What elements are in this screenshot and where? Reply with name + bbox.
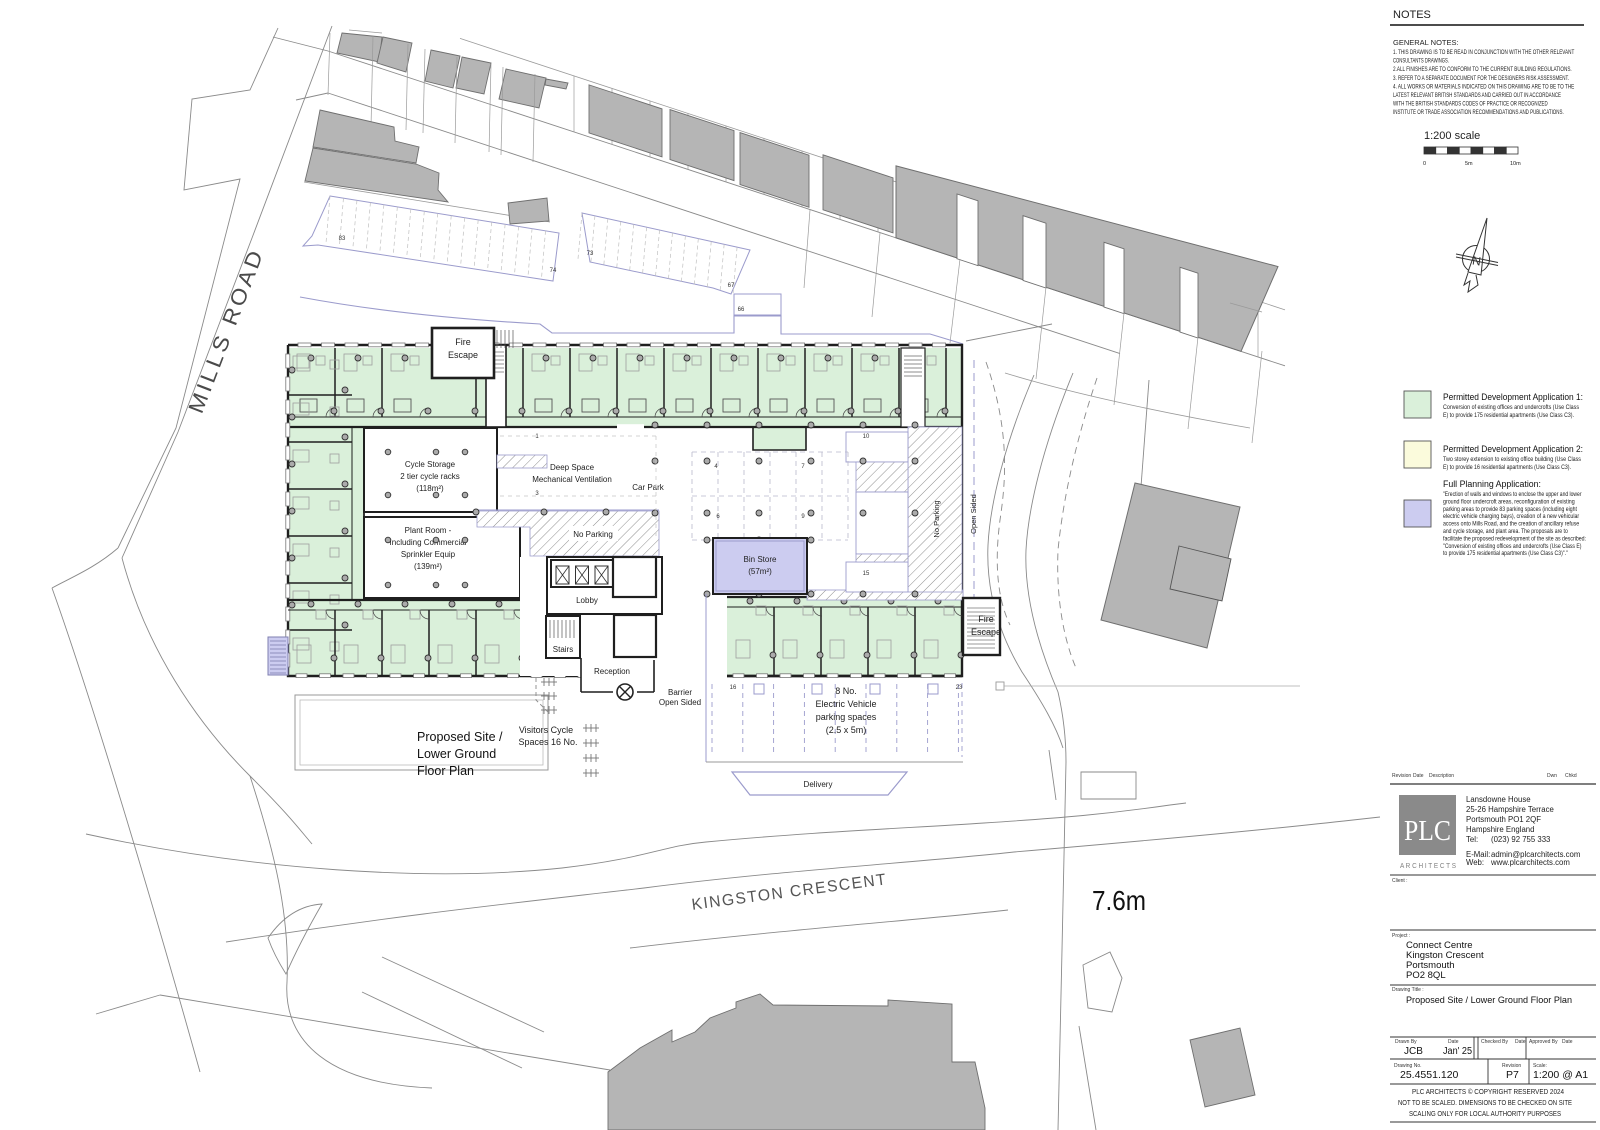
svg-text:Proposed Site /: Proposed Site / <box>417 730 503 744</box>
svg-text:16: 16 <box>730 685 737 691</box>
svg-text:NOTES: NOTES <box>1393 9 1431 21</box>
svg-text:ground floor undercroft areas,: ground floor undercroft areas, reconfigu… <box>1443 498 1575 505</box>
svg-text:Deep Space: Deep Space <box>550 463 595 472</box>
svg-text:66: 66 <box>738 307 745 313</box>
svg-text:GENERAL NOTES:: GENERAL NOTES: <box>1393 38 1459 47</box>
svg-text:www.plcarchitects.com: www.plcarchitects.com <box>1490 858 1570 867</box>
svg-text:Lobby: Lobby <box>576 596 598 605</box>
svg-text:4. ALL WORKS OR MATERIALS INDI: 4. ALL WORKS OR MATERIALS INDICATED ON T… <box>1393 84 1574 90</box>
svg-text:Electric Vehicle: Electric Vehicle <box>815 699 876 709</box>
svg-text:Stairs: Stairs <box>553 645 573 654</box>
svg-text:7.6m: 7.6m <box>1092 885 1146 916</box>
svg-text:74: 74 <box>550 268 557 274</box>
svg-text:Drawn By: Drawn By <box>1395 1039 1417 1045</box>
svg-text:Two storey extension to existi: Two storey extension to existing office … <box>1443 456 1581 463</box>
svg-text:parking spaces: parking spaces <box>816 712 877 722</box>
svg-text:1:200 @ A1: 1:200 @ A1 <box>1533 1069 1588 1081</box>
svg-text:A R C H I T E C T S: A R C H I T E C T S <box>1400 861 1456 870</box>
svg-text:67: 67 <box>728 283 735 289</box>
svg-text:2.ALL FINISHES ARE TO CONFORM: 2.ALL FINISHES ARE TO CONFORM TO THE CUR… <box>1393 67 1572 73</box>
svg-text:to provide 175 residential apa: to provide 175 residential apartments (U… <box>1443 550 1568 557</box>
svg-text:facilitate the proposed redeve: facilitate the proposed redevelopment of… <box>1443 535 1586 542</box>
svg-text:Escape: Escape <box>448 350 478 360</box>
svg-text:1. THIS DRAWING IS TO BE READ: 1. THIS DRAWING IS TO BE READ IN CONJUNC… <box>1393 50 1575 56</box>
svg-text:"Conversion of existing office: "Conversion of existing offices and unde… <box>1443 543 1582 550</box>
svg-text:Dwn: Dwn <box>1547 773 1557 779</box>
svg-text:3. REFER TO A SEPARATE DOCUMEN: 3. REFER TO A SEPARATE DOCUMENT FOR THE … <box>1393 76 1569 82</box>
svg-text:Date: Date <box>1562 1039 1573 1045</box>
svg-text:Sprinkler Equip: Sprinkler Equip <box>401 550 456 559</box>
svg-text:Cycle Storage: Cycle Storage <box>405 460 456 469</box>
svg-text:Car Park: Car Park <box>632 483 665 492</box>
svg-text:(57m²): (57m²) <box>748 567 772 576</box>
svg-text:NOT TO BE SCALED. DIMENSIONS: NOT TO BE SCALED. DIMENSIONS TO BE CHECK… <box>1398 1100 1572 1107</box>
svg-text:Fire: Fire <box>978 614 994 624</box>
svg-text:10: 10 <box>863 434 870 440</box>
svg-text:Checked By: Checked By <box>1481 1039 1508 1045</box>
svg-text:25-26 Hampshire Terrace: 25-26 Hampshire Terrace <box>1466 805 1554 814</box>
svg-text:Open Sided: Open Sided <box>659 698 701 707</box>
svg-text:PLC: PLC <box>1404 815 1451 847</box>
svg-text:Barrier: Barrier <box>668 688 692 697</box>
svg-text:(118m²): (118m²) <box>416 484 444 493</box>
svg-text:Including Commercial: Including Commercial <box>390 538 467 547</box>
svg-text:Permitted Development Applicat: Permitted Development Application 2: <box>1443 444 1583 454</box>
svg-text:and cycle storage, and plant a: and cycle storage, and plant area. The p… <box>1443 528 1568 535</box>
svg-text:Chkd: Chkd <box>1565 773 1577 779</box>
svg-text:15: 15 <box>863 571 870 577</box>
svg-text:parking areas to provide 83 pa: parking areas to provide 83 parking spac… <box>1443 506 1577 513</box>
svg-text:P7: P7 <box>1506 1069 1519 1081</box>
svg-text:Open Sided: Open Sided <box>969 494 978 534</box>
svg-text:JCB: JCB <box>1404 1046 1423 1057</box>
svg-text:Plant Room -: Plant Room - <box>405 526 452 535</box>
svg-text:Permitted Development Applicat: Permitted Development Application 1: <box>1443 392 1583 402</box>
svg-text:Project :: Project : <box>1392 933 1410 939</box>
svg-text:25.4551.120: 25.4551.120 <box>1400 1069 1459 1081</box>
svg-text:2 tier cycle racks: 2 tier cycle racks <box>400 472 460 481</box>
svg-text:Hampshire England: Hampshire England <box>1466 825 1534 834</box>
svg-text:1:200 scale: 1:200 scale <box>1424 130 1480 142</box>
svg-text:Fire: Fire <box>455 337 471 347</box>
svg-text:23: 23 <box>956 685 963 691</box>
svg-text:Delivery: Delivery <box>804 780 833 789</box>
svg-text:Client :: Client : <box>1392 878 1408 884</box>
svg-text:Approved By: Approved By <box>1529 1039 1558 1045</box>
svg-text:0: 0 <box>1423 161 1426 167</box>
svg-text:Date: Date <box>1448 1039 1459 1045</box>
svg-text:access onto Mills Road, and th: access onto Mills Road, and the creation… <box>1443 521 1580 528</box>
svg-text:"Erection of walls and windows: "Erection of walls and windows to enclos… <box>1443 491 1582 498</box>
svg-text:electric vehicle charging bays: electric vehicle charging bays), creatio… <box>1443 513 1579 520</box>
svg-text:Visitors Cycle: Visitors Cycle <box>519 725 573 735</box>
svg-text:INSTITUTE OR TRADE ASSOCIATION: INSTITUTE OR TRADE ASSOCIATION RECOMMEND… <box>1393 110 1564 116</box>
svg-text:Drawing Title :: Drawing Title : <box>1392 987 1424 993</box>
svg-text:10m: 10m <box>1510 161 1521 167</box>
svg-text:E) to provide 16 residential a: E) to provide 16 residential apartments … <box>1443 464 1571 471</box>
svg-text:Reception: Reception <box>594 667 630 676</box>
svg-text:Description: Description <box>1429 773 1454 779</box>
svg-text:Tel:: Tel: <box>1466 835 1478 844</box>
svg-text:(023) 92 755 333: (023) 92 755 333 <box>1491 835 1550 844</box>
svg-text:Bin Store: Bin Store <box>744 555 777 564</box>
svg-text:Jan' 25: Jan' 25 <box>1443 1046 1472 1057</box>
svg-text:8 No.: 8 No. <box>835 686 857 696</box>
svg-text:Date: Date <box>1515 1039 1526 1045</box>
svg-text:Escape: Escape <box>971 627 1001 637</box>
svg-text:(139m²): (139m²) <box>414 562 442 571</box>
svg-text:SCALING ONLY FOR LOCAL AUTHORI: SCALING ONLY FOR LOCAL AUTHORITY PURPOSE… <box>1409 1111 1561 1118</box>
svg-text:Revision: Revision <box>1392 773 1411 779</box>
svg-text:Conversion of existing offices: Conversion of existing offices and under… <box>1443 404 1579 411</box>
svg-text:Lower Ground: Lower Ground <box>417 747 496 761</box>
svg-text:CONSULTANTS DRAWINGS.: CONSULTANTS DRAWINGS. <box>1393 59 1449 65</box>
svg-text:83: 83 <box>339 236 346 242</box>
svg-text:Lansdowne House: Lansdowne House <box>1466 795 1531 804</box>
svg-text:Portsmouth PO1 2QF: Portsmouth PO1 2QF <box>1466 815 1541 824</box>
svg-text:Proposed Site / Lower Ground F: Proposed Site / Lower Ground Floor Plan <box>1406 995 1572 1006</box>
svg-text:Full Planning Application:: Full Planning Application: <box>1443 479 1541 489</box>
svg-text:No Parking: No Parking <box>573 530 613 539</box>
svg-text:Mechanical Ventilation: Mechanical Ventilation <box>532 475 612 484</box>
svg-text:Web:: Web: <box>1466 858 1484 867</box>
svg-text:73: 73 <box>587 251 594 257</box>
svg-text:(2.5 x 5m): (2.5 x 5m) <box>826 725 867 735</box>
svg-text:Spaces 16 No.: Spaces 16 No. <box>518 737 577 747</box>
svg-text:Date: Date <box>1413 773 1424 779</box>
svg-text:LATEST RELEVANT BRITISH STANDA: LATEST RELEVANT BRITISH STANDARDS AND CA… <box>1393 93 1561 99</box>
svg-text:5m: 5m <box>1465 161 1473 167</box>
svg-text:Floor Plan: Floor Plan <box>417 764 474 778</box>
svg-text:PLC ARCHITECTS © COP: PLC ARCHITECTS © COPYRIGHT RESERVED 2024 <box>1412 1088 1564 1096</box>
svg-text:WITH THE BRITISH STANDARDS COD: WITH THE BRITISH STANDARDS CODES OF PRAC… <box>1393 102 1548 108</box>
svg-text:PO2 8QL: PO2 8QL <box>1406 970 1446 981</box>
svg-text:E) to provide 175 residential: E) to provide 175 residential apartments… <box>1443 412 1574 419</box>
svg-text:No Parking: No Parking <box>932 500 941 537</box>
